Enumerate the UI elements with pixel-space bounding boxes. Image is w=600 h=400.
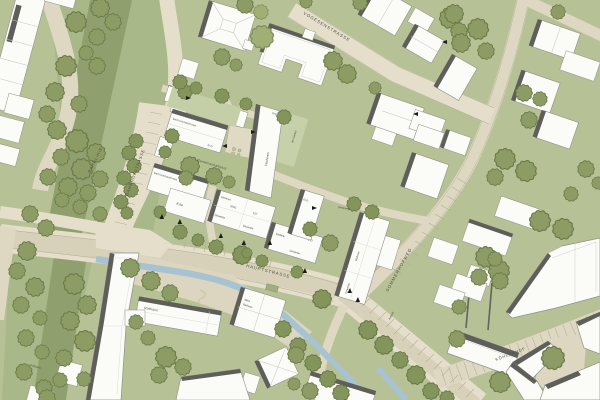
svg-text:TG: TG — [168, 84, 172, 88]
